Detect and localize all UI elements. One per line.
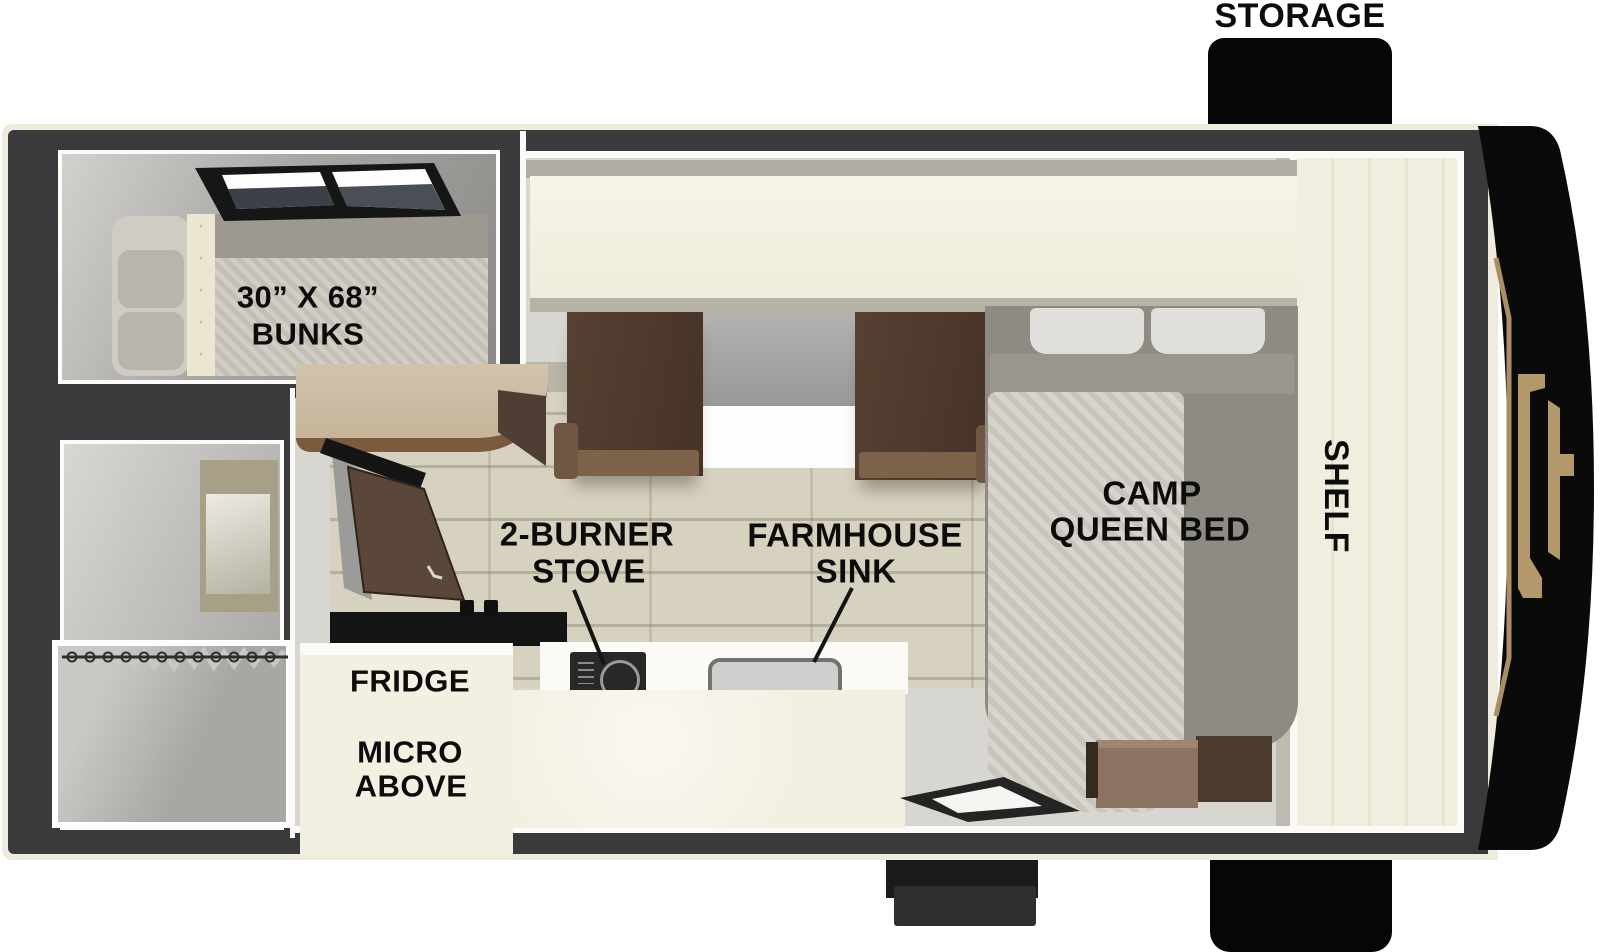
sink-label-line2: SINK: [816, 555, 897, 588]
detail-overlay: [0, 0, 1600, 952]
fridge-label: FRIDGE: [350, 666, 470, 697]
sink-leader-line: [814, 588, 852, 662]
floor-plan-canvas: STORAGE 30” X 68” BUNKS 2-BURNER STOVE F…: [0, 0, 1600, 952]
bed-label-line2: QUEEN BED: [1050, 513, 1251, 546]
stove-label-line2: STOVE: [532, 555, 646, 588]
wall-end-wedge: [498, 390, 546, 466]
shelf-label: SHELF: [1319, 439, 1353, 553]
entry-mat: [900, 777, 1080, 822]
stove-leader-line: [574, 590, 604, 664]
micro-label-line1: MICRO: [357, 737, 463, 768]
stove-label-line1: 2-BURNER: [500, 518, 675, 551]
sink-label-line1: FARMHOUSE: [747, 519, 962, 552]
bunks-label: BUNKS: [252, 319, 365, 350]
entry-door: [320, 438, 464, 600]
bed-label-line1: CAMP: [1102, 477, 1201, 510]
bunk-window: [195, 163, 461, 221]
micro-label-line2: ABOVE: [355, 771, 468, 802]
shower-curtain-rod: [62, 650, 288, 668]
bunks-size-label: 30” X 68”: [237, 282, 379, 313]
storage-label: STORAGE: [1214, 0, 1385, 33]
